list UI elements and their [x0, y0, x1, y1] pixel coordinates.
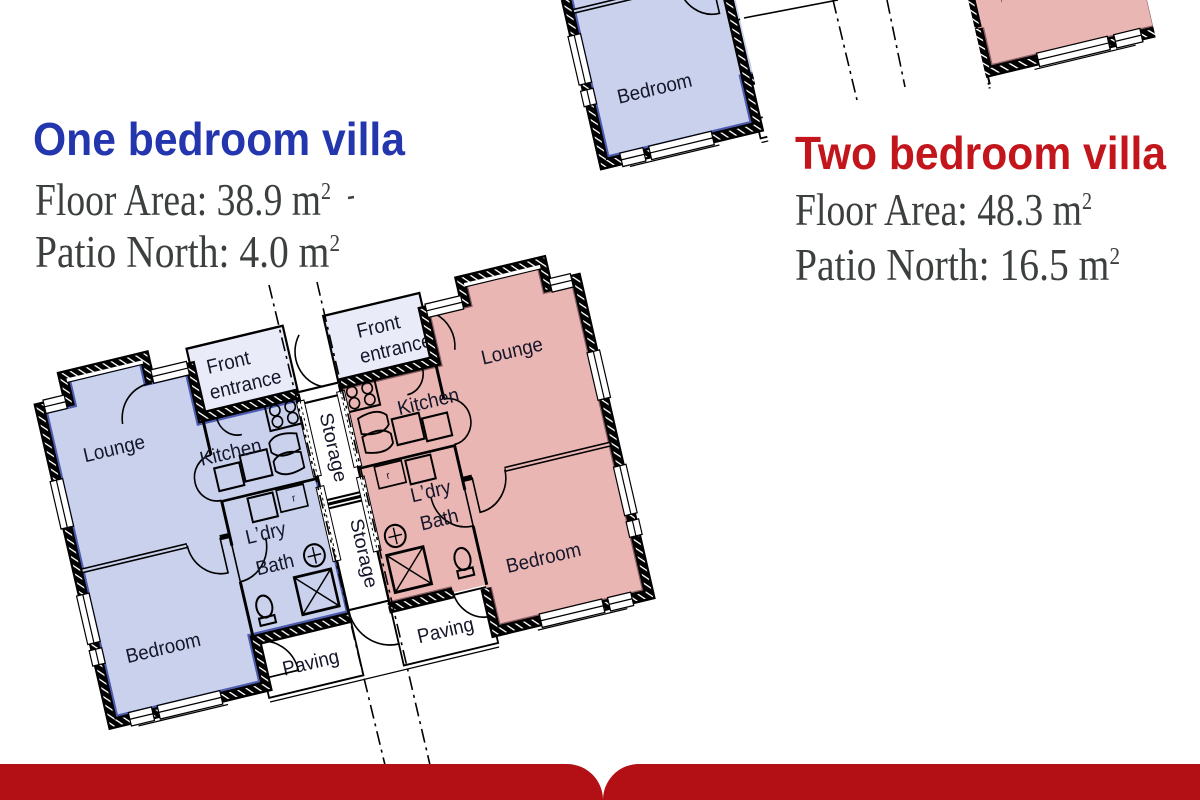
svg-text:Two bedroom villa: Two bedroom villa	[795, 127, 1166, 179]
svg-text:Patio North: 4.0 m2: Patio North: 4.0 m2	[35, 227, 340, 277]
svg-text:One bedroom villa: One bedroom villa	[33, 113, 405, 165]
svg-text:Floor Area: 38.9 m2: Floor Area: 38.9 m2	[35, 175, 331, 225]
svg-text:Floor Area: 48.3 m2: Floor Area: 48.3 m2	[795, 185, 1092, 235]
svg-text:Patio North: 16.5 m2: Patio North: 16.5 m2	[795, 240, 1120, 290]
